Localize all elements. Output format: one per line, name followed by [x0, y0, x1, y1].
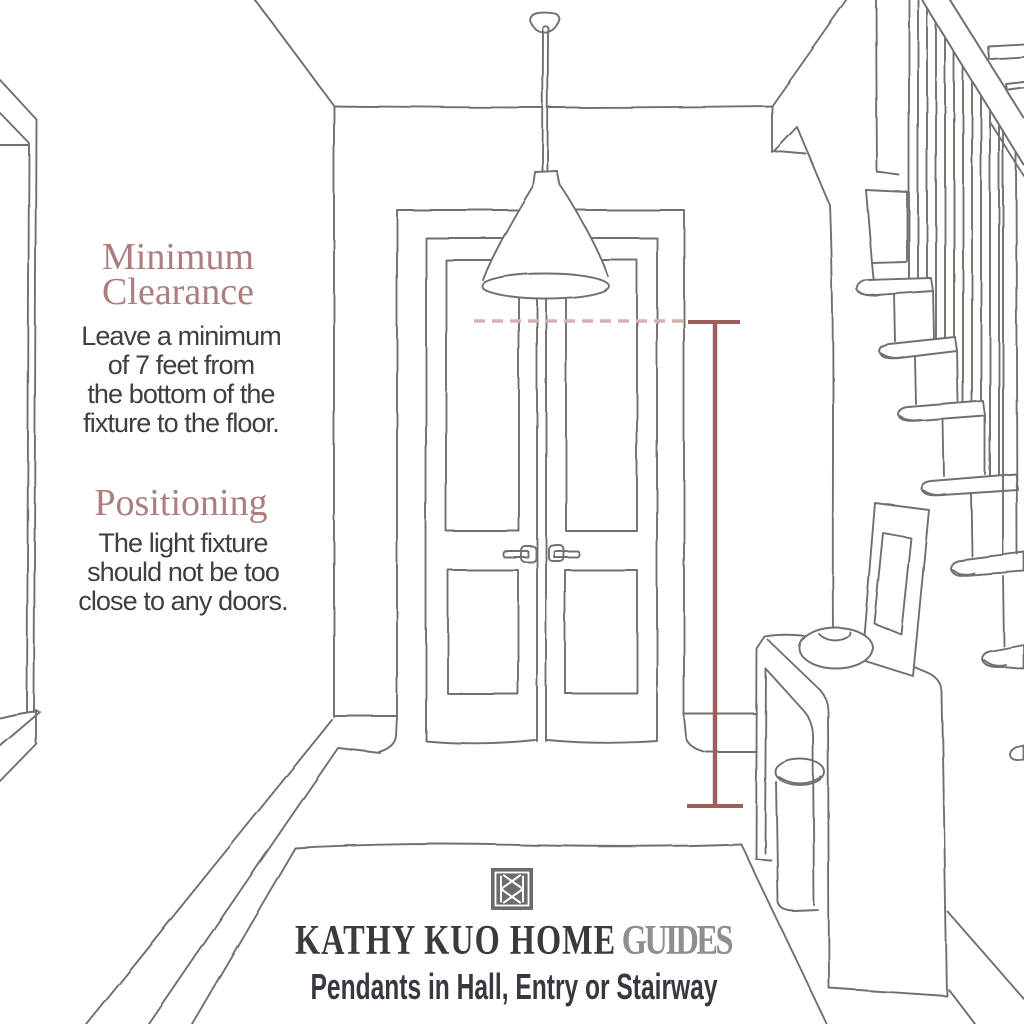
svg-text:fixture to the floor.: fixture to the floor.: [83, 408, 279, 438]
svg-text:Positioning: Positioning: [94, 482, 267, 524]
svg-text:should not be too: should not be too: [87, 557, 279, 587]
svg-text:Clearance: Clearance: [102, 271, 254, 313]
svg-text:of 7 feet from: of 7 feet from: [108, 350, 254, 380]
svg-text:KATHY KUO HOME GUIDES: KATHY KUO HOME GUIDES: [295, 918, 733, 964]
svg-text:Pendants in Hall, Entry or Sta: Pendants in Hall, Entry or Stairway: [311, 966, 718, 1007]
svg-text:the bottom of the: the bottom of the: [87, 379, 274, 409]
svg-text:Leave a minimum: Leave a minimum: [81, 321, 281, 351]
svg-text:The light fixture: The light fixture: [98, 528, 267, 558]
svg-text:close to any doors.: close to any doors.: [78, 586, 288, 616]
